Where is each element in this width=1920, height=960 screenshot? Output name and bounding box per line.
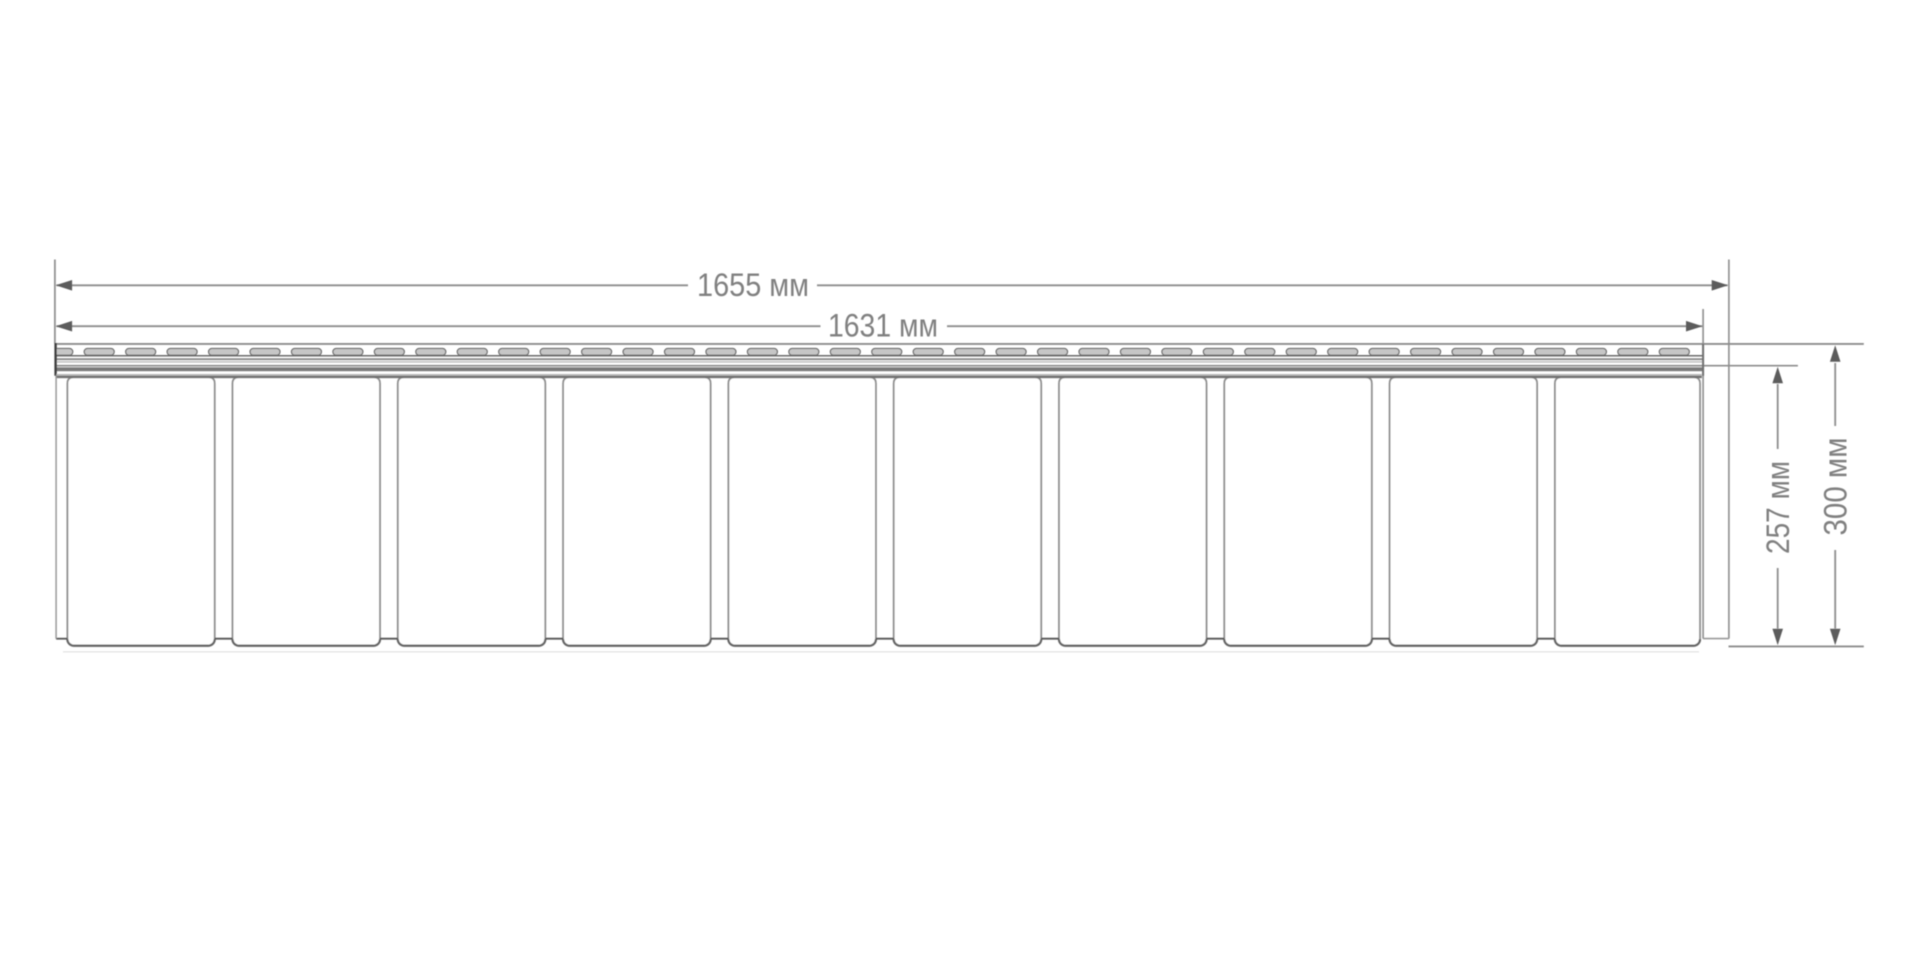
svg-text:257 мм: 257 мм xyxy=(1760,461,1796,554)
svg-text:1631 мм: 1631 мм xyxy=(828,307,938,343)
svg-text:300 мм: 300 мм xyxy=(1818,438,1854,536)
svg-text:1655 мм: 1655 мм xyxy=(697,267,809,303)
